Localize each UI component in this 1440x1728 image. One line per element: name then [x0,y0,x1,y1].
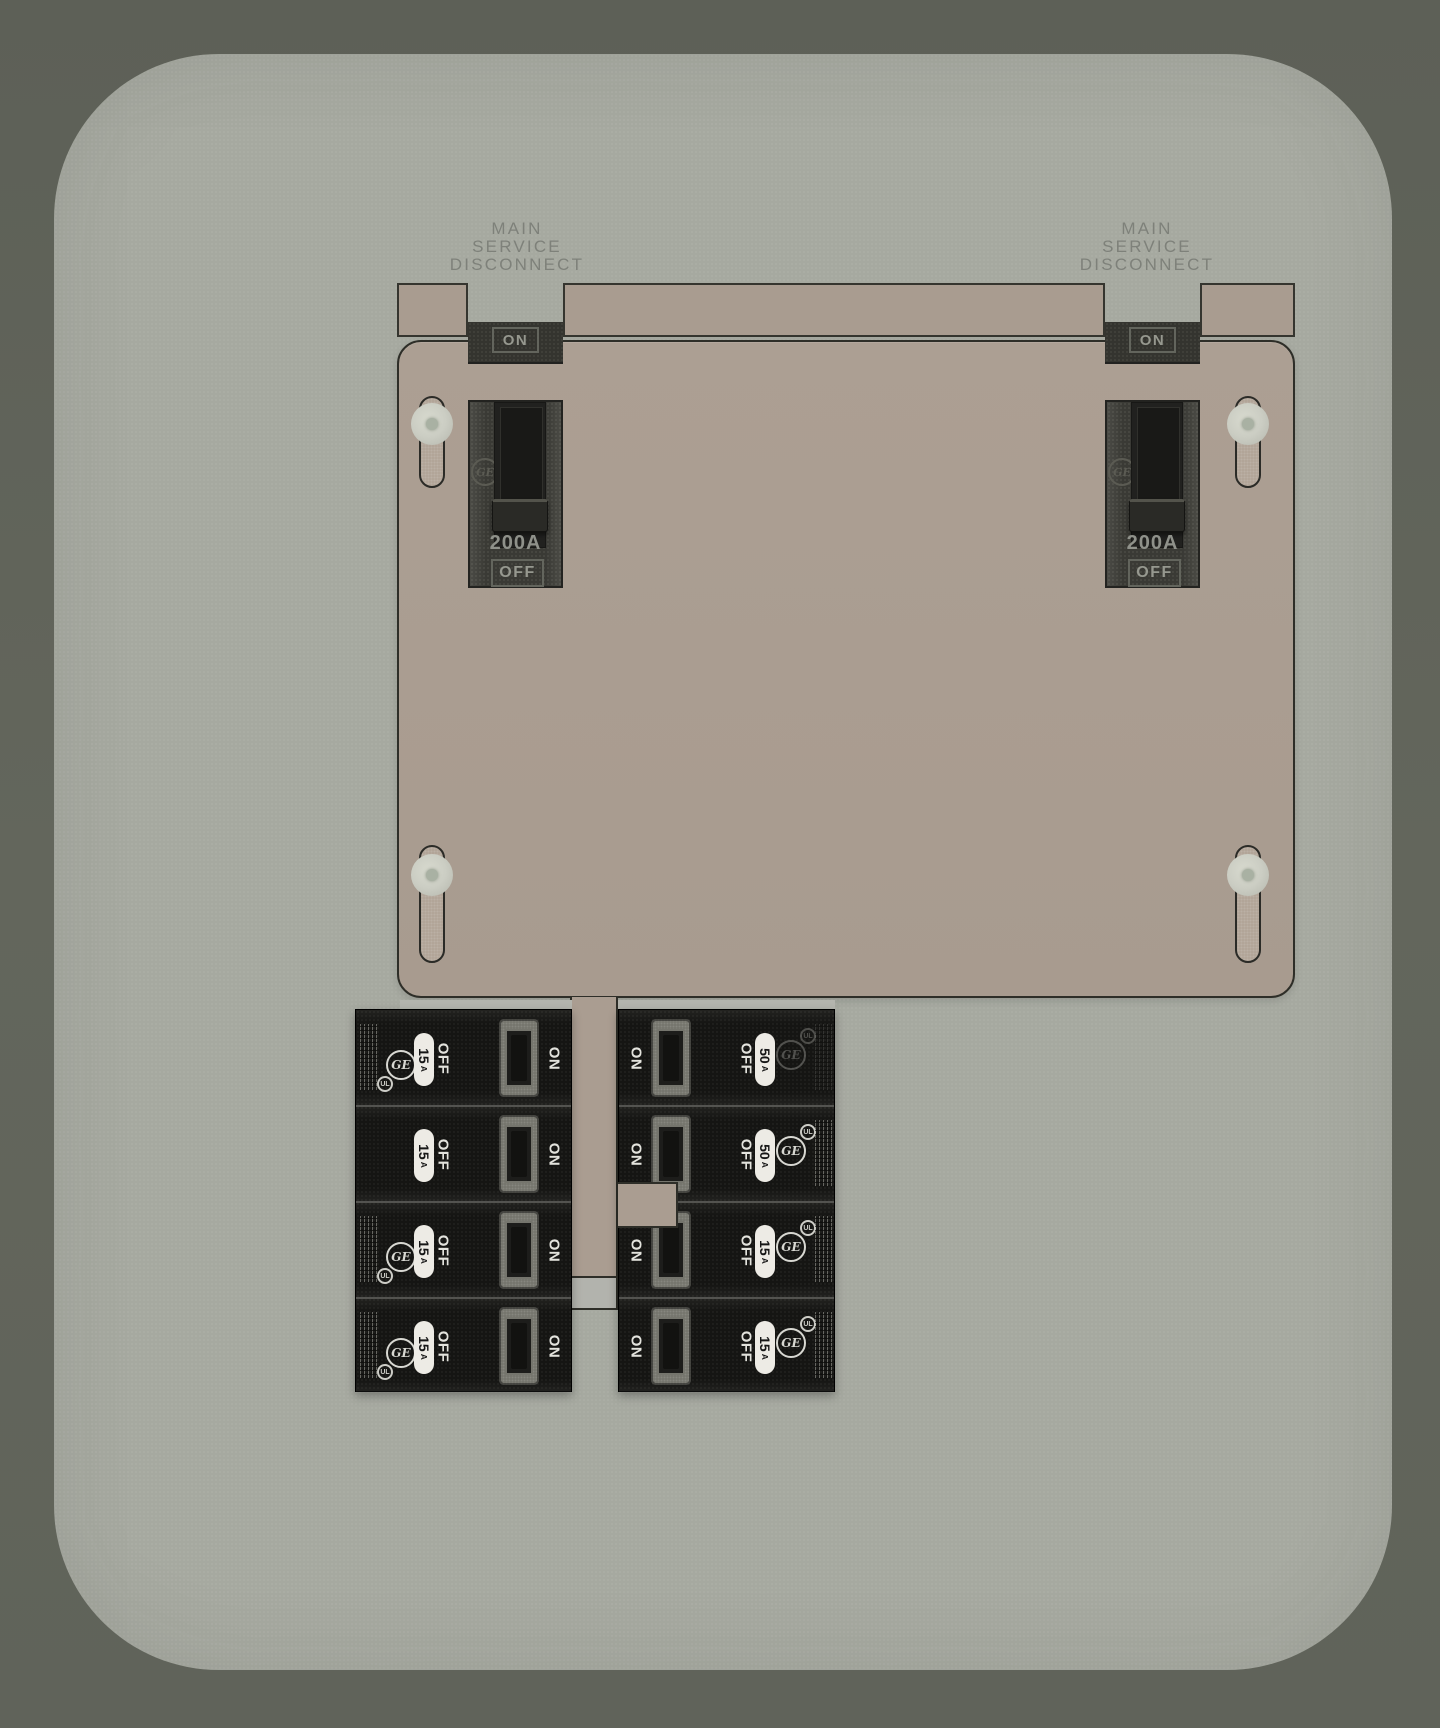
main-breaker-left: ON GE 200A OFF [468,322,563,588]
ul-logo-icon: UL [800,1316,816,1332]
ge-logo-icon: GE [776,1232,806,1262]
breaker-toggle-handle[interactable] [657,1317,685,1375]
fine-print-lines-icon [815,1216,832,1282]
label-line: DISCONNECT [387,256,647,274]
on-label: ON [537,1298,571,1394]
fine-print-lines-icon [815,1120,832,1186]
breaker-toggle-handle[interactable] [657,1221,685,1279]
ul-logo-icon: UL [800,1124,816,1140]
off-label: OFF [426,1010,460,1106]
off-label: OFF [426,1202,460,1298]
amp-rating-pill: 15A [755,1225,775,1278]
label-line: SERVICE [1017,238,1277,256]
on-text: ON [1140,332,1166,349]
mounting-strip [563,283,1105,337]
breaker-row: ON OFF 15A GE UL [619,1298,834,1393]
on-position-label: ON [1129,327,1176,353]
ge-logo-icon: GE [776,1040,806,1070]
breaker-toggle-slot[interactable] [651,1307,691,1385]
screw-center-icon [426,869,438,881]
breaker-toggle-slot[interactable] [499,1211,539,1289]
on-label: ON [619,1298,653,1394]
ul-logo-icon: UL [377,1364,393,1380]
row-divider [619,1297,834,1299]
breaker-toggle-handle[interactable] [505,1125,533,1183]
cover-center-rail-end [570,1276,618,1310]
off-text: OFF [499,564,536,582]
ul-logo-icon: UL [377,1268,393,1284]
mounting-strip [397,283,468,337]
main-breaker-right: ON GE 200A OFF [1105,322,1200,588]
amp-rating-label: 200A [470,532,561,555]
breaker-toggle-handle[interactable] [505,1029,533,1087]
ul-logo-icon: UL [377,1076,393,1092]
ul-logo-icon: UL [800,1220,816,1236]
main-breaker-cutout: GE 200A OFF [1105,400,1200,588]
on-label: ON [537,1202,571,1298]
main-service-disconnect-label-right: MAIN SERVICE DISCONNECT [1017,220,1277,274]
on-label: ON [537,1010,571,1106]
off-label: OFF [426,1106,460,1202]
cover-tab [618,1182,678,1228]
branch-breaker-group-left: GE UL 15A OFF ON 15A OFF ON GE UL 15A OF… [355,1009,572,1392]
label-line: DISCONNECT [1017,256,1277,274]
breaker-toggle-slot[interactable] [651,1019,691,1097]
label-line: MAIN [1017,220,1277,238]
breaker-row: GE UL 15A OFF ON [356,1010,571,1106]
row-divider [356,1105,571,1107]
label-line: SERVICE [387,238,647,256]
fine-print-lines-icon [815,1024,832,1090]
main-breaker-cutout: GE 200A OFF [468,400,563,588]
main-breaker-handle-grip[interactable] [492,499,548,532]
breaker-toggle-slot[interactable] [499,1307,539,1385]
breaker-toggle-handle[interactable] [657,1125,685,1183]
breaker-toggle-handle[interactable] [505,1317,533,1375]
breaker-toggle-handle[interactable] [505,1221,533,1279]
ul-logo-icon: UL [800,1028,816,1044]
on-text: ON [503,332,529,349]
breaker-row: 15A OFF ON [356,1106,571,1202]
on-position-label: ON [492,327,539,353]
main-breaker-slot [1131,402,1183,548]
fine-print-lines-icon [815,1312,832,1378]
ge-logo-icon: GE [386,1050,416,1080]
row-divider [356,1201,571,1203]
ge-logo-icon: GE [776,1136,806,1166]
breaker-toggle-handle[interactable] [657,1029,685,1087]
ge-logo-icon: GE [776,1328,806,1358]
main-breaker-handle-grip[interactable] [1129,499,1185,532]
fine-print-lines-icon [360,1312,377,1378]
breaker-row: GE UL 15A OFF ON [356,1202,571,1298]
main-breaker-handle[interactable] [1137,407,1180,502]
main-breaker-slot [494,402,546,548]
label-line: MAIN [387,220,647,238]
screw-center-icon [1242,418,1254,430]
screw-center-icon [426,418,438,430]
ge-logo-icon: GE [386,1242,416,1272]
ge-logo-icon: GE [386,1338,416,1368]
breaker-panel-scene: MAIN SERVICE DISCONNECT MAIN SERVICE DIS… [0,0,1440,1728]
off-text: OFF [1136,564,1173,582]
cover-center-rail [570,997,618,1277]
amp-rating-pill: 50A [755,1129,775,1182]
breaker-toggle-slot[interactable] [499,1115,539,1193]
row-divider [619,1105,834,1107]
fine-print-lines-icon [360,1216,377,1282]
off-position-label: OFF [491,559,544,587]
amp-rating-label: 200A [1107,532,1198,555]
amp-rating-pill: 50A [755,1033,775,1086]
screw-center-icon [1242,869,1254,881]
off-position-label: OFF [1128,559,1181,587]
main-breaker-top: ON [1105,322,1200,364]
fine-print-lines-icon [360,1024,377,1090]
breaker-toggle-slot[interactable] [499,1019,539,1097]
breaker-row: ON OFF 50A GE UL [619,1010,834,1106]
on-label: ON [619,1010,653,1106]
on-label: ON [537,1106,571,1202]
main-breaker-top: ON [468,322,563,364]
mounting-strip [1200,283,1295,337]
amp-rating-pill: 15A [755,1321,775,1374]
main-breaker-handle[interactable] [500,407,543,502]
breaker-row: GE UL 15A OFF ON [356,1298,571,1393]
row-divider [356,1297,571,1299]
off-label: OFF [426,1298,460,1394]
main-service-disconnect-label-left: MAIN SERVICE DISCONNECT [387,220,647,274]
